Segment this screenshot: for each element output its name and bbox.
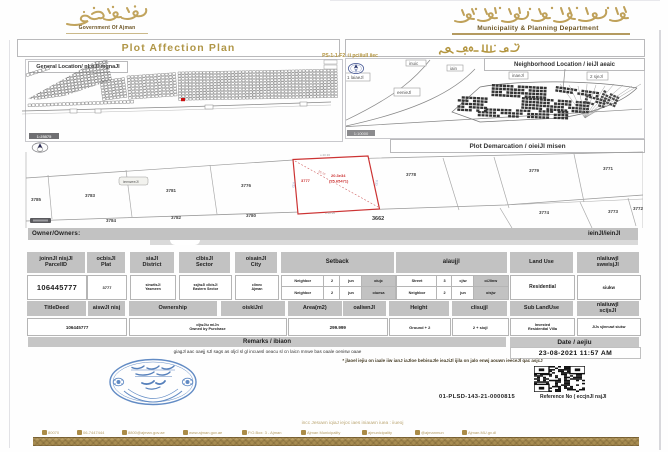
- svg-text:3785: 3785: [31, 197, 42, 202]
- svg-text:1 laiaeJl: 1 laiaeJl: [347, 75, 364, 80]
- svg-text:iain: iain: [450, 66, 458, 71]
- svg-text:3662: 3662: [372, 216, 384, 222]
- svg-text:inaeJl: inaeJl: [512, 73, 524, 78]
- svg-text:3776: 3776: [241, 183, 252, 188]
- svg-text:3778: 3778: [406, 172, 417, 177]
- svg-text:3780: 3780: [246, 213, 257, 218]
- svg-text:inuic: inuic: [409, 61, 419, 66]
- svg-text:2 sjeJl: 2 sjeJl: [590, 74, 603, 79]
- svg-text:3783: 3783: [85, 193, 96, 198]
- svg-text:3774: 3774: [539, 210, 550, 215]
- svg-text:20.3e34: 20.3e34: [331, 173, 346, 178]
- svg-text:(25.65471): (25.65471): [329, 179, 349, 184]
- svg-text:3782: 3782: [171, 215, 182, 220]
- svg-text:3779: 3779: [529, 168, 540, 173]
- svg-text:eenieJl: eenieJl: [397, 90, 411, 95]
- svg-text:3771: 3771: [603, 166, 614, 171]
- svg-text:3772: 3772: [633, 206, 643, 211]
- svg-text:3773: 3773: [608, 209, 619, 214]
- svg-text:ienweeJl: ienweeJl: [123, 179, 139, 184]
- svg-text:o 20.36: o 20.36: [325, 211, 335, 215]
- svg-text:3784: 3784: [106, 218, 117, 223]
- svg-text:o 20.36: o 20.36: [320, 153, 330, 157]
- svg-text:12.5: 12.5: [374, 179, 379, 186]
- svg-text:3781: 3781: [166, 188, 177, 193]
- svg-text:3777: 3777: [301, 178, 311, 183]
